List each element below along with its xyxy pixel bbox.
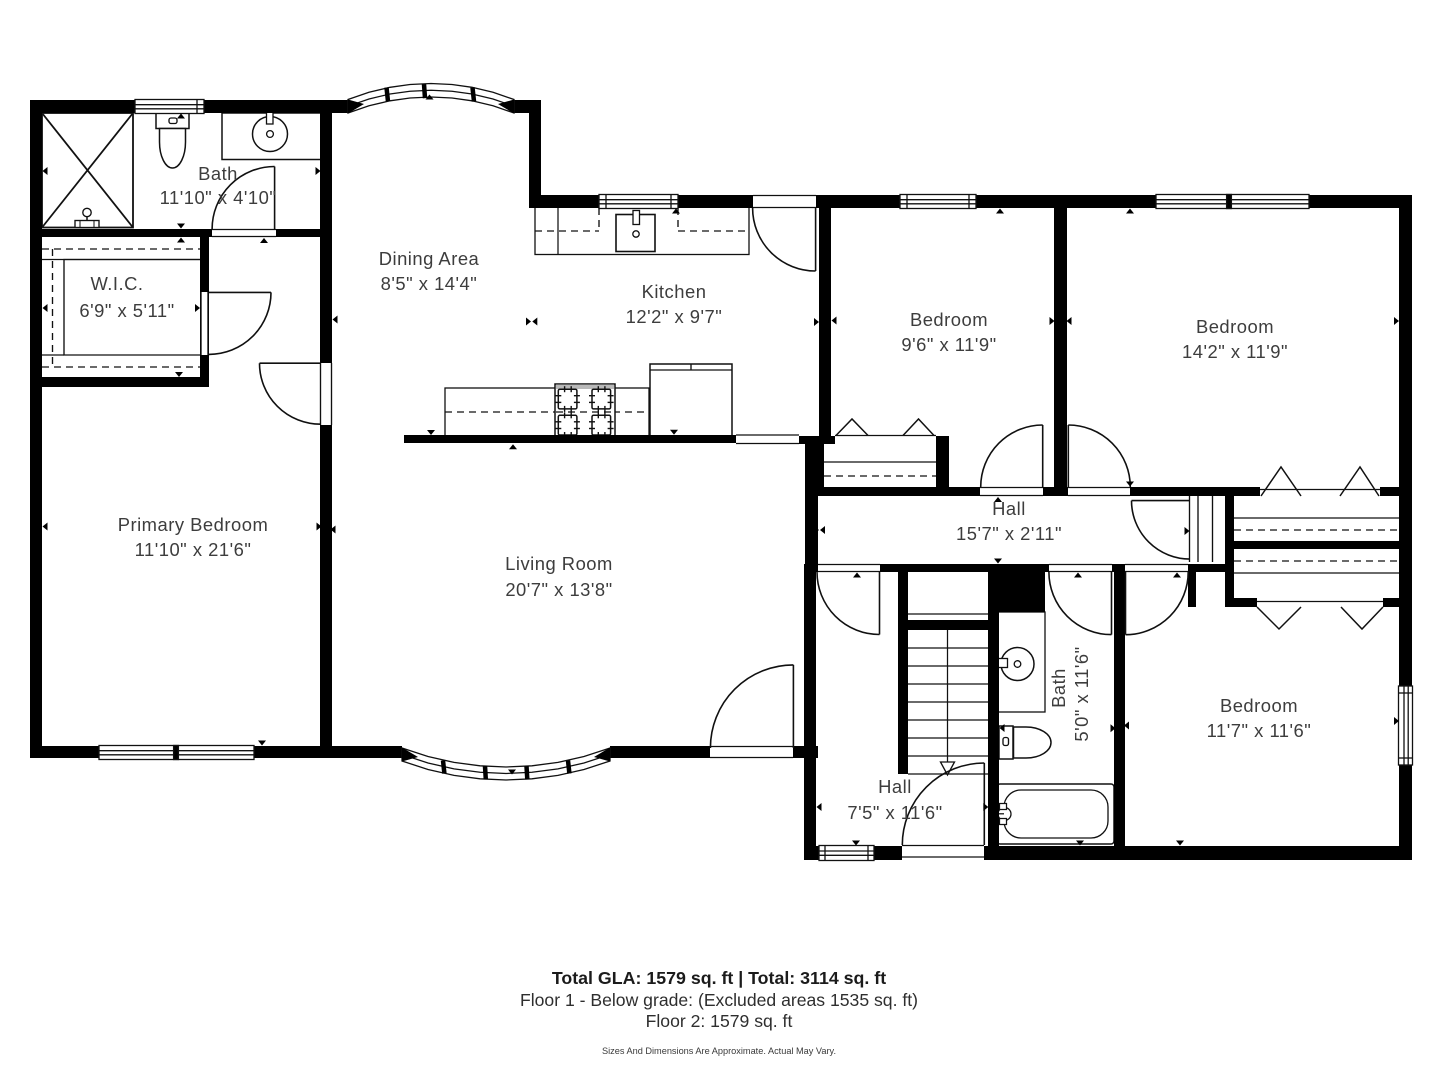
- svg-text:Hall: Hall: [878, 776, 912, 797]
- svg-text:Living Room: Living Room: [505, 553, 613, 574]
- svg-text:15'7" x 2'11": 15'7" x 2'11": [956, 523, 1062, 544]
- svg-text:12'2" x 9'7": 12'2" x 9'7": [626, 306, 723, 327]
- svg-text:14'2" x 11'9": 14'2" x 11'9": [1182, 341, 1288, 362]
- svg-text:Total GLA: 1579 sq. ft | Total: Total GLA: 1579 sq. ft | Total: 3114 sq.…: [552, 968, 886, 988]
- svg-text:9'6" x 11'9": 9'6" x 11'9": [901, 334, 996, 355]
- svg-text:11'7" x 11'6": 11'7" x 11'6": [1207, 720, 1312, 741]
- svg-text:Floor 1 - Below grade: (Exclud: Floor 1 - Below grade: (Excluded areas 1…: [520, 990, 918, 1010]
- svg-text:7'5" x 11'6": 7'5" x 11'6": [847, 802, 942, 823]
- svg-text:Kitchen: Kitchen: [642, 281, 707, 302]
- svg-text:20'7" x 13'8": 20'7" x 13'8": [505, 579, 612, 600]
- svg-text:6'9" x 5'11": 6'9" x 5'11": [79, 300, 174, 321]
- svg-text:Sizes And Dimensions Are Appro: Sizes And Dimensions Are Approximate. Ac…: [602, 1046, 836, 1056]
- svg-text:W.I.C.: W.I.C.: [90, 273, 143, 294]
- svg-text:Bath: Bath: [1048, 668, 1069, 708]
- svg-text:Bedroom: Bedroom: [910, 309, 988, 330]
- svg-text:Bedroom: Bedroom: [1196, 316, 1274, 337]
- svg-text:Floor 2: 1579 sq. ft: Floor 2: 1579 sq. ft: [646, 1011, 793, 1031]
- svg-text:Hall: Hall: [992, 498, 1026, 519]
- svg-text:Bath: Bath: [198, 163, 238, 184]
- svg-text:11'10" x 21'6": 11'10" x 21'6": [135, 539, 252, 560]
- svg-text:5'0" x 11'6": 5'0" x 11'6": [1071, 646, 1092, 741]
- svg-text:Primary Bedroom: Primary Bedroom: [118, 514, 269, 535]
- svg-text:8'5" x 14'4": 8'5" x 14'4": [381, 273, 478, 294]
- svg-text:Bedroom: Bedroom: [1220, 695, 1298, 716]
- svg-text:11'10" x 4'10": 11'10" x 4'10": [160, 187, 277, 208]
- svg-text:Dining Area: Dining Area: [379, 248, 480, 269]
